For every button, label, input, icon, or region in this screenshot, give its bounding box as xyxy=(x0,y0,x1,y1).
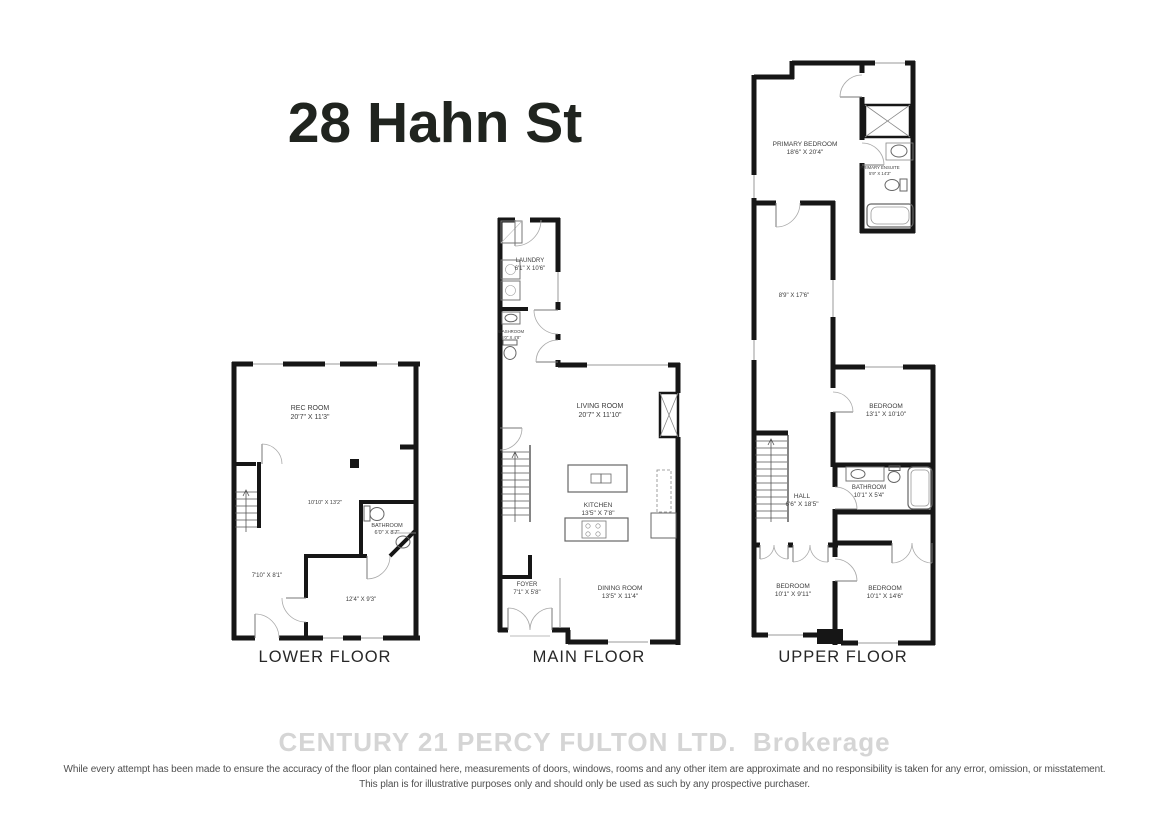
room-label-lower-den: 7'10" X 8'1" xyxy=(236,573,298,581)
room-label-primary-bedroom: PRIMARY BEDROOM 18'6" X 20'4" xyxy=(758,141,852,158)
room-label-bedroom3: BEDROOM 10'1" X 9'11" xyxy=(758,583,828,600)
toilet-icon xyxy=(885,179,907,191)
closet-icon xyxy=(865,105,910,137)
toilet-icon xyxy=(888,466,900,483)
floor-plan-sheet: 28 Hahn St xyxy=(0,0,1169,826)
sink-icon xyxy=(886,143,913,160)
room-label-kitchen: KITCHEN 13'5" X 7'8" xyxy=(566,502,630,519)
disclaimer-line-1: While every attempt has been made to ens… xyxy=(0,764,1169,775)
main-floor-plan: LAUNDRY 6'1" X 10'6" WASHROOM 5'0" X 4'8… xyxy=(494,212,684,648)
room-label-living-room: LIVING ROOM 20'7" X 11'10" xyxy=(558,402,642,420)
room-label-upper-bathroom: BATHROOM 10'1" X 5'4" xyxy=(838,485,900,501)
stairs-icon xyxy=(501,445,530,522)
fridge-counter-icon xyxy=(651,470,676,538)
page-title: 28 Hahn St xyxy=(225,90,645,156)
toilet-icon xyxy=(503,340,517,360)
disclaimer-line-2: This plan is for illustrative purposes o… xyxy=(0,779,1169,790)
room-label-laundry: LAUNDRY 6'1" X 10'6" xyxy=(506,258,554,274)
upper-floor-plan: PRIMARY BEDROOM 18'6" X 20'4" PRIMARY EN… xyxy=(748,55,938,647)
room-label-dining-room: DINING ROOM 13'5" X 11'4" xyxy=(578,585,662,602)
room-label-bedroom4: BEDROOM 10'1" X 14'6" xyxy=(850,585,920,602)
upper-floor-title: UPPER FLOOR xyxy=(748,648,938,667)
entry-step-block xyxy=(817,629,843,644)
room-label-foyer: FOYER 7'1" X 5'8" xyxy=(502,582,552,598)
room-label-bedroom2: BEDROOM 13'1" X 10'10" xyxy=(848,403,924,420)
main-floor-title: MAIN FLOOR xyxy=(494,648,684,667)
room-label-sitting-area: 8'9" X 17'6" xyxy=(754,293,834,301)
room-label-primary-ensuite: PRIMARY ENSUITE 5'9" X 14'3" xyxy=(856,165,904,176)
stairs-icon xyxy=(235,490,257,532)
kitchen-island-icon xyxy=(568,465,627,492)
room-label-lower-bathroom: BATHROOM 6'0" X 8'7" xyxy=(362,523,412,537)
sink-icon xyxy=(502,312,520,324)
sink-icon xyxy=(846,467,884,481)
room-label-hall: HALL 6'6" X 18'5" xyxy=(778,493,826,510)
bathtub-icon xyxy=(867,204,913,227)
bathtub-icon xyxy=(908,467,932,509)
post-icon xyxy=(350,459,359,468)
fireplace-icon xyxy=(660,393,678,437)
room-label-lower-open-area: 10'10" X 13'2" xyxy=(280,500,370,507)
closet-icon xyxy=(501,221,522,243)
lower-floor-plan: REC ROOM 20'7" X 11'3" 10'10" X 13'2" BA… xyxy=(228,356,422,646)
door-swing-icons xyxy=(255,444,390,638)
stove-counter-icon xyxy=(565,518,628,541)
lower-floor-title: LOWER FLOOR xyxy=(228,648,422,667)
brokerage-watermark: CENTURY 21 PERCY FULTON LTD. Brokerage xyxy=(0,727,1169,758)
room-label-lower-rear-room: 12'4" X 9'3" xyxy=(328,597,394,605)
toilet-icon xyxy=(364,506,384,521)
room-label-rec-room: REC ROOM 20'7" X 11'3" xyxy=(266,404,354,422)
room-label-washroom: WASHROOM 5'0" X 4'8" xyxy=(495,329,527,340)
